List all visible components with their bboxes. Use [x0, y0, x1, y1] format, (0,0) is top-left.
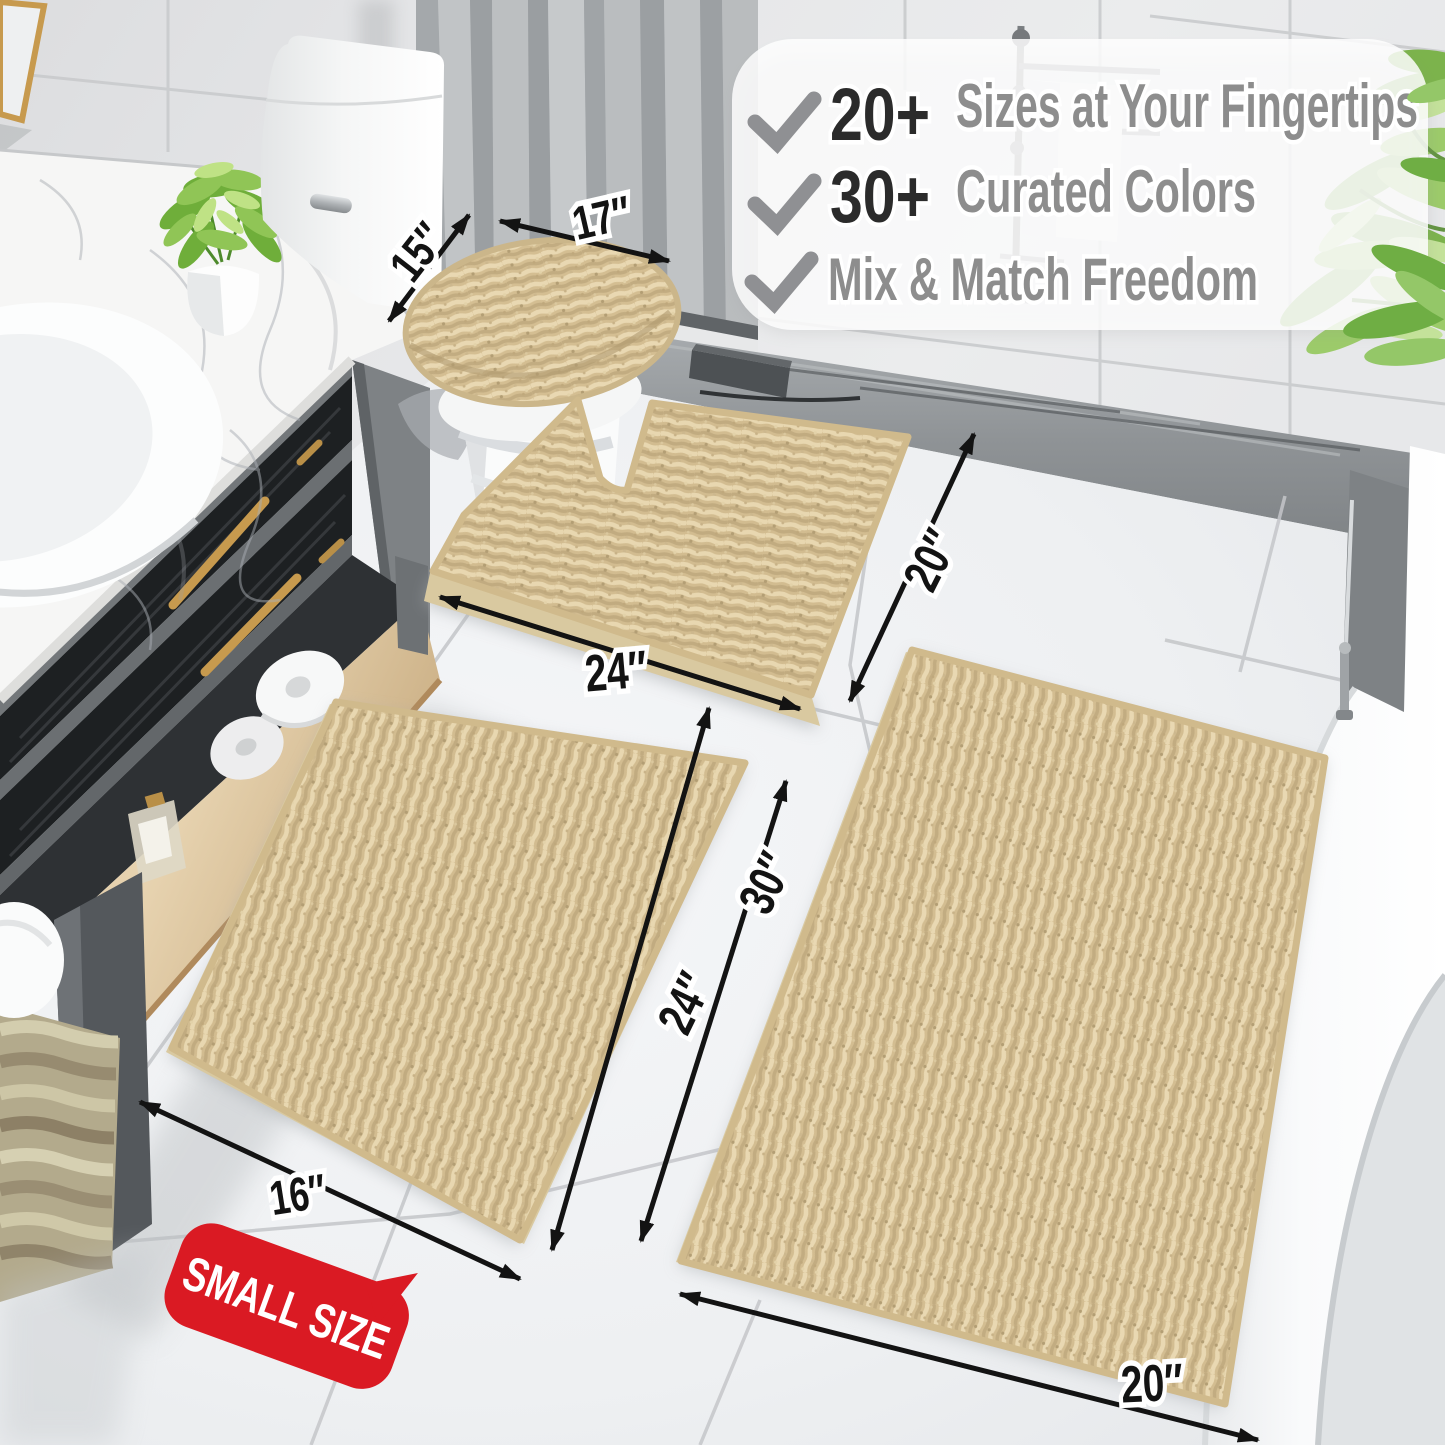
- svg-text:30+: 30+: [830, 155, 930, 238]
- svg-text:16″: 16″: [266, 1165, 330, 1226]
- svg-text:Curated Colors: Curated Colors: [956, 158, 1256, 225]
- svg-text:Sizes at Your Fingertips: Sizes at Your Fingertips: [956, 72, 1418, 141]
- svg-text:20+: 20+: [830, 73, 930, 156]
- svg-text:20″: 20″: [1120, 1353, 1185, 1414]
- svg-text:24″: 24″: [583, 640, 650, 703]
- svg-text:Mix & Match Freedom: Mix & Match Freedom: [828, 246, 1258, 313]
